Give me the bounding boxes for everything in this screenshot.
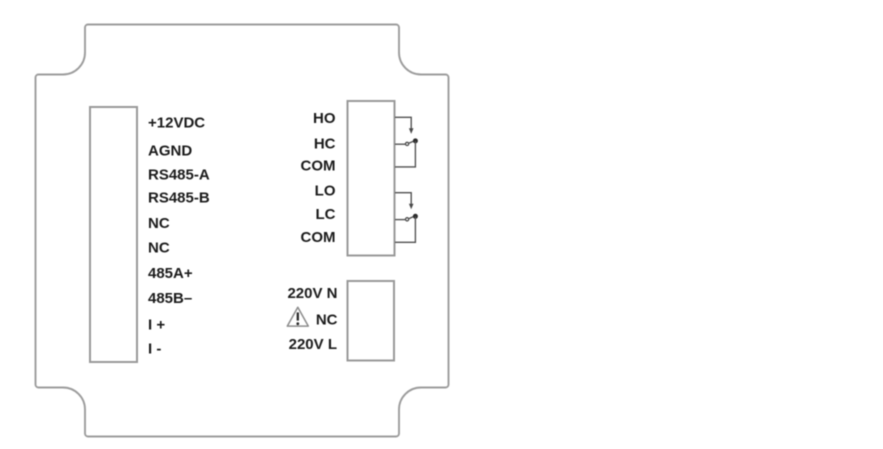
svg-text:LO: LO xyxy=(315,183,336,200)
svg-text:485A+: 485A+ xyxy=(148,265,193,282)
svg-text:RS485-B: RS485-B xyxy=(148,190,210,207)
svg-text:HO: HO xyxy=(313,110,336,127)
svg-text:HC: HC xyxy=(314,135,336,152)
svg-text:COM: COM xyxy=(301,229,336,246)
svg-text:220V L: 220V L xyxy=(289,336,337,353)
svg-text:NC: NC xyxy=(316,312,338,329)
svg-text:220V N: 220V N xyxy=(287,285,337,302)
svg-text:485B–: 485B– xyxy=(148,290,192,307)
svg-text:+12VDC: +12VDC xyxy=(148,115,205,132)
svg-text:I -: I - xyxy=(148,341,161,358)
svg-text:NC: NC xyxy=(148,215,170,232)
svg-text:LC: LC xyxy=(316,206,336,223)
svg-text:I +: I + xyxy=(148,317,165,334)
svg-text:AGND: AGND xyxy=(148,143,192,160)
svg-text:COM: COM xyxy=(301,158,336,175)
svg-text:RS485-A: RS485-A xyxy=(148,166,210,183)
svg-text:NC: NC xyxy=(148,240,170,257)
